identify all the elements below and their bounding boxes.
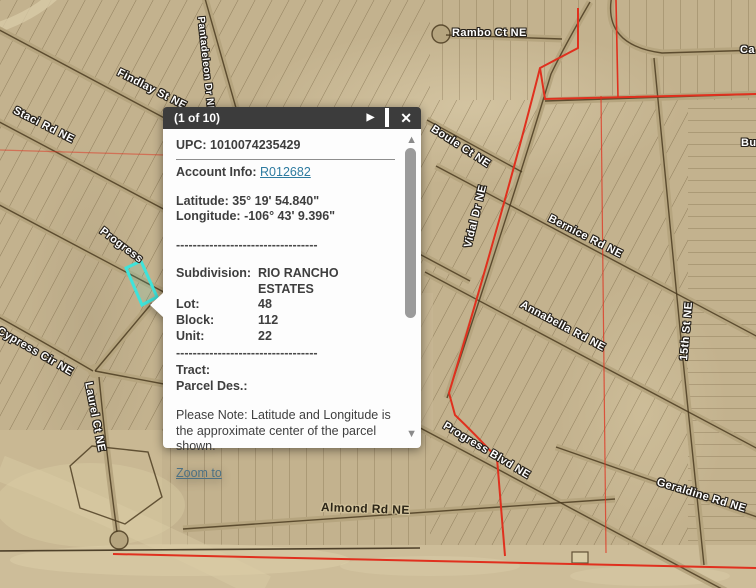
dashed-separator-2: ---------------------------------- [176,346,395,362]
unit-value: 22 [258,329,272,345]
block-row: Block: 112 [176,313,395,329]
next-feature-icon[interactable]: ▶ [367,113,375,123]
block-value: 112 [258,313,278,329]
lot-label: Lot: [176,297,258,313]
street-label-bu-partial: Bu [741,137,756,149]
maximize-icon[interactable] [385,112,389,124]
coordinates-block: Latitude: 35° 19' 54.840" Longitude: -10… [176,194,395,226]
parcel-info-popup: (1 of 10) ▶ ✕ UPC: 1010074235429 Account… [163,107,421,448]
longitude-row: Longitude: -106° 43' 9.396" [176,209,395,225]
street-label-rambo: Rambo Ct NE [452,27,527,39]
subdivision-row: Subdivision: RIO RANCHO ESTATES [176,266,395,298]
account-label: Account Info: [176,165,257,179]
subdivision-value: RIO RANCHO ESTATES [258,266,395,298]
street-label-ca-partial: Ca [740,44,755,56]
popup-header: (1 of 10) ▶ ✕ [163,107,421,129]
subdivision-label: Subdivision: [176,266,258,298]
parcel-des-label: Parcel Des.: [176,379,395,395]
popup-pointer [150,292,164,318]
popup-pager-title: (1 of 10) [174,111,356,125]
zoom-to-link[interactable]: Zoom to [176,466,222,482]
tract-block: Tract: Parcel Des.: [176,363,395,395]
scroll-down-icon[interactable]: ▼ [406,428,417,442]
note-text: Please Note: Latitude and Longitude is t… [176,408,395,455]
lot-row: Lot: 48 [176,297,395,313]
close-icon[interactable]: ✕ [400,111,412,125]
account-row: Account Info: R012682 [176,165,395,181]
latitude-value: 35° 19' 54.840" [232,194,319,208]
upc-row: UPC: 1010074235429 [176,138,395,154]
unit-label: Unit: [176,329,258,345]
lot-value: 48 [258,297,272,313]
account-link[interactable]: R012682 [260,165,311,179]
scrollbar-thumb[interactable] [405,148,416,318]
unit-row: Unit: 22 [176,329,395,345]
popup-body: UPC: 1010074235429 Account Info: R012682… [163,129,421,448]
upc-label: UPC: [176,138,207,152]
longitude-label: Longitude: [176,209,241,223]
latitude-label: Latitude: [176,194,229,208]
latitude-row: Latitude: 35° 19' 54.840" [176,194,395,210]
dashed-separator: ---------------------------------- [176,238,395,254]
longitude-value: -106° 43' 9.396" [244,209,335,223]
map-viewport[interactable]: Findlay St NE Pantadeleon Dr NE Staci Rd… [0,0,756,588]
block-label: Block: [176,313,258,329]
scroll-up-icon[interactable]: ▲ [406,134,417,148]
tract-label: Tract: [176,363,395,379]
upc-value: 1010074235429 [210,138,300,152]
divider-line [176,159,395,160]
